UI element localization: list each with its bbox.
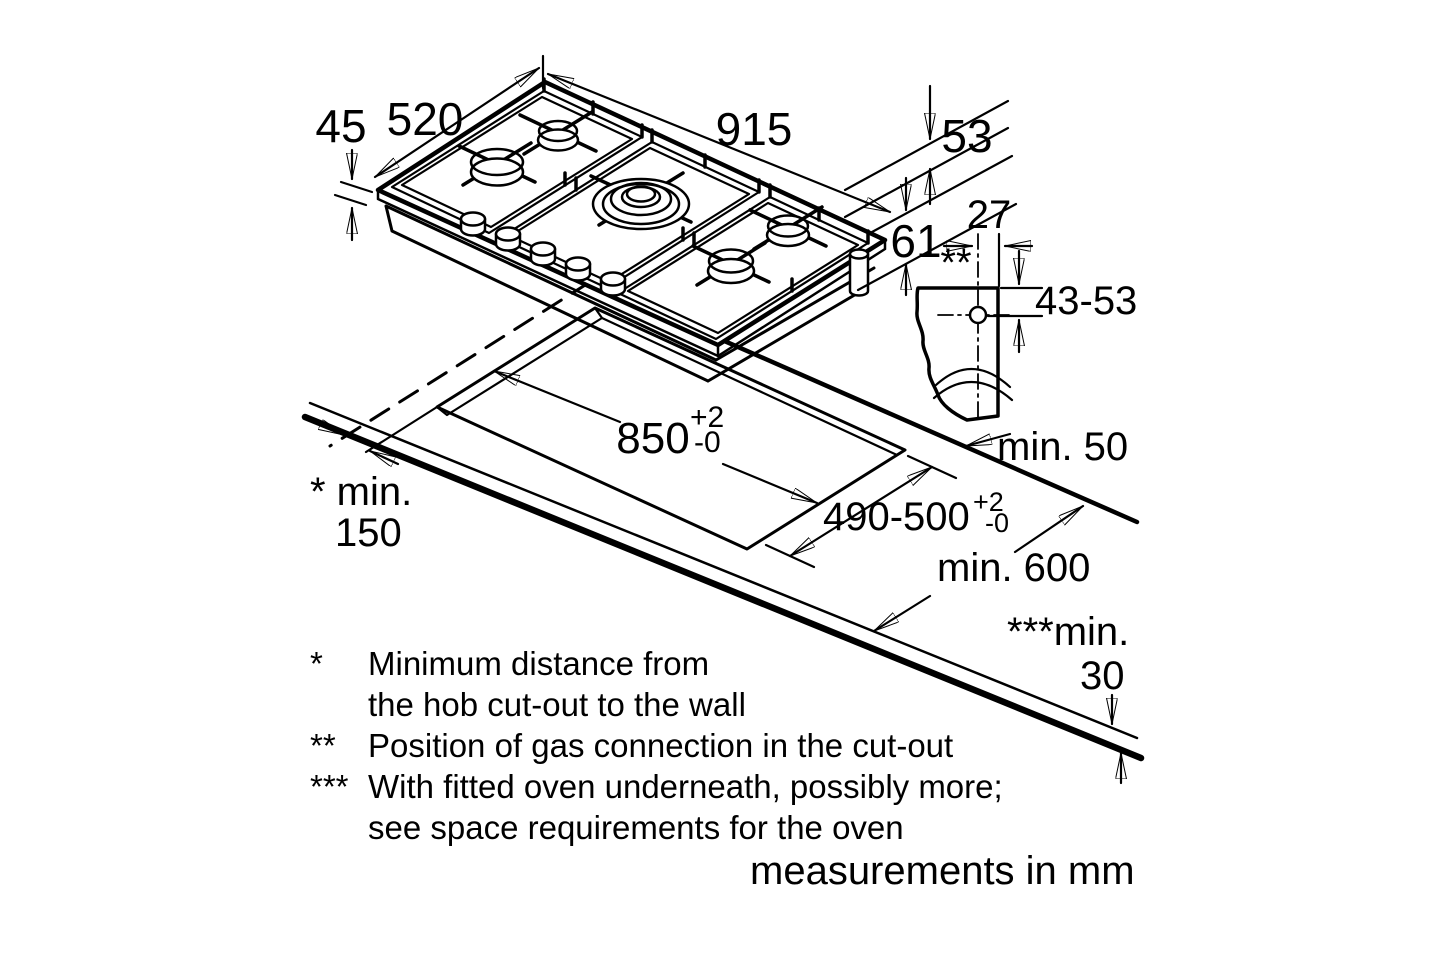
clearance-front-label-2: 30 [1080, 654, 1125, 698]
clearance-side-label-1: * min. [310, 470, 412, 514]
footnote-line-5: see space requirements for the oven [368, 809, 904, 846]
gas-connection-hole [970, 307, 986, 323]
footnotes: * Minimum distance from the hob cut-out … [310, 645, 1003, 846]
dim-gas-offset-label: 27 [967, 193, 1012, 237]
min600-arrow-down [874, 596, 930, 631]
dim-hob-width-label: 915 [716, 103, 793, 155]
worktop-section-outline [917, 288, 998, 420]
footnote-line-2: the hob cut-out to the wall [368, 686, 746, 723]
height-45-ticks [335, 182, 372, 205]
burner-wok-center [593, 179, 689, 229]
dim-cutout-depth-label: 490-500 [823, 495, 970, 539]
dim-61-label: 61 [890, 215, 941, 267]
cutout-width-tol-minus: -0 [694, 426, 721, 459]
footnote-marker-3: ** [310, 727, 336, 764]
clearance-rear-label: min. 50 [997, 425, 1128, 469]
footnote-marker-1: * [310, 645, 323, 682]
installation-diagram-page: 45 520 915 53 61 27 ** 43-53 850 +2 -0 4… [0, 0, 1445, 963]
worktop-depth-label: min. 600 [937, 546, 1090, 590]
footnote-marker-4: *** [310, 768, 349, 805]
gas-ref-marker: ** [940, 241, 971, 285]
hob-installation-diagram: 45 520 915 53 61 27 ** 43-53 850 +2 -0 4… [0, 0, 1445, 963]
dim-hob-depth-label: 520 [387, 93, 464, 145]
cutout-850-arrow-left [494, 371, 620, 422]
clearance-front-label-1: ***min. [1007, 610, 1129, 654]
cutout-850-arrow-right [723, 464, 817, 503]
dim-cutout-width-label: 850 [616, 414, 689, 463]
dim-gas-vertical-label: 43-53 [1035, 279, 1137, 323]
footnote-line-3: Position of gas connection in the cut-ou… [368, 727, 953, 764]
dim-hob-height-label: 45 [315, 100, 366, 152]
dim-53-label: 53 [941, 110, 992, 162]
footnote-line-1: Minimum distance from [368, 645, 709, 682]
clearance-side-label-2: 150 [335, 511, 402, 555]
footnote-line-4: With fitted oven underneath, possibly mo… [368, 768, 1003, 805]
cutout-depth-tol-minus: -0 [985, 508, 1009, 538]
unit-note: measurements in mm [750, 849, 1135, 893]
